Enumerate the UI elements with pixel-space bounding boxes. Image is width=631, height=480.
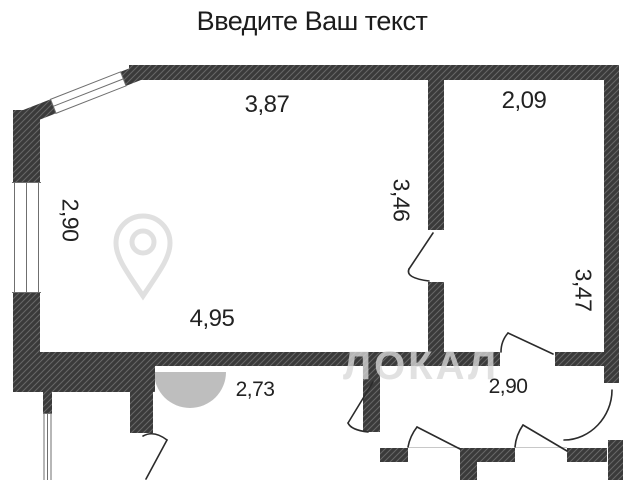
wall-top	[129, 65, 619, 80]
watermark-pin-icon	[116, 216, 170, 296]
floor-plan: Введите Ваш текст ЛОКАЛ 3,87 2,09 2,90 3…	[0, 0, 631, 480]
dimension-living-top: 3,87	[245, 91, 290, 119]
bay-window	[51, 72, 126, 113]
wall-bottom-c	[567, 448, 607, 462]
dimension-living-bottom: 4,95	[190, 305, 235, 333]
wall-bottom-b-stub	[460, 448, 477, 480]
wall-bottom-a	[380, 448, 408, 462]
wall-band-thick	[13, 352, 155, 392]
left-window	[12, 182, 41, 293]
dimension-hallway-left: 2,73	[236, 378, 275, 402]
wall-lowerleft-room	[130, 392, 153, 433]
watermark-blob	[154, 372, 226, 408]
door-right-room	[501, 333, 553, 354]
wall-right	[604, 65, 619, 383]
plan-title: Введите Ваш текст	[197, 6, 428, 37]
walls-group	[13, 65, 623, 480]
wall-window-stub	[43, 392, 52, 413]
dimension-living-right: 3,46	[388, 179, 415, 222]
dimension-right-room-right: 3,47	[570, 269, 597, 312]
lower-left-window	[43, 413, 52, 480]
door-right-wall	[564, 390, 612, 440]
wall-hall-top-left	[155, 352, 500, 366]
wall-hall-stub	[363, 366, 380, 432]
floor-plan-drawing	[0, 0, 631, 480]
dimension-hallway-right: 2,90	[489, 375, 528, 399]
wall-middle-lower	[428, 282, 444, 352]
dimension-living-left: 2,90	[57, 199, 84, 242]
door-middle-wall	[408, 233, 433, 281]
door-bottom-a	[408, 427, 460, 449]
wall-middle-upper	[428, 65, 444, 230]
wall-right-lower	[608, 440, 623, 480]
dimension-right-room-top: 2,09	[502, 87, 547, 115]
door-lower-left	[143, 434, 167, 479]
wall-hall-top-right	[555, 352, 604, 366]
